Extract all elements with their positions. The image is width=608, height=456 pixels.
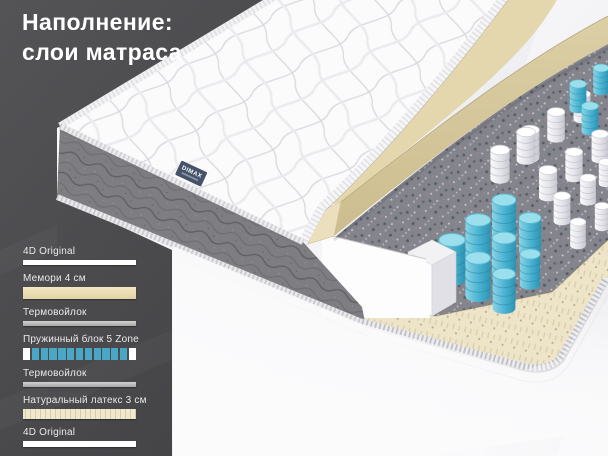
legend-swatch-latex-cream — [23, 409, 136, 419]
mattress-layers-infographic: Наполнение: слои матраса 4D Original Мем… — [0, 0, 608, 456]
legend-swatch-memory-beige — [23, 287, 136, 299]
legend-item-springs: Пружинный блок 5 Zone — [23, 334, 136, 360]
legend-item-memory: Мемори 4 см — [23, 273, 136, 299]
page-title: Наполнение: слои матраса — [22, 7, 182, 68]
legend-label: Термовойлок — [23, 368, 136, 379]
page-title-line1: Наполнение: — [22, 7, 182, 37]
legend-item-cover-bottom: 4D Original — [23, 427, 136, 447]
legend-item-latex: Натуральный латекс 3 см — [23, 395, 136, 419]
legend-swatch-fabric-white — [23, 260, 136, 265]
legend-label: 4D Original — [23, 246, 136, 257]
legend-label: Пружинный блок 5 Zone — [23, 334, 136, 345]
legend-swatch-fabric-white — [23, 441, 136, 447]
legend-item-felt-bottom: Термовойлок — [23, 368, 136, 387]
legend-label: Натуральный латекс 3 см — [23, 395, 136, 406]
legend-label: Термовойлок — [23, 307, 136, 318]
layers-legend: 4D Original Мемори 4 см Термовойлок Пруж… — [23, 246, 136, 455]
page-title-line2: слои матраса — [22, 37, 182, 67]
legend-item-felt-top: Термовойлок — [23, 307, 136, 326]
legend-swatch-felt-gray — [23, 321, 136, 326]
legend-label: Мемори 4 см — [23, 273, 136, 284]
legend-item-cover-top: 4D Original — [23, 246, 136, 265]
legend-swatch-felt-gray — [23, 382, 136, 387]
legend-label: 4D Original — [23, 427, 136, 438]
legend-swatch-springs — [23, 348, 136, 360]
